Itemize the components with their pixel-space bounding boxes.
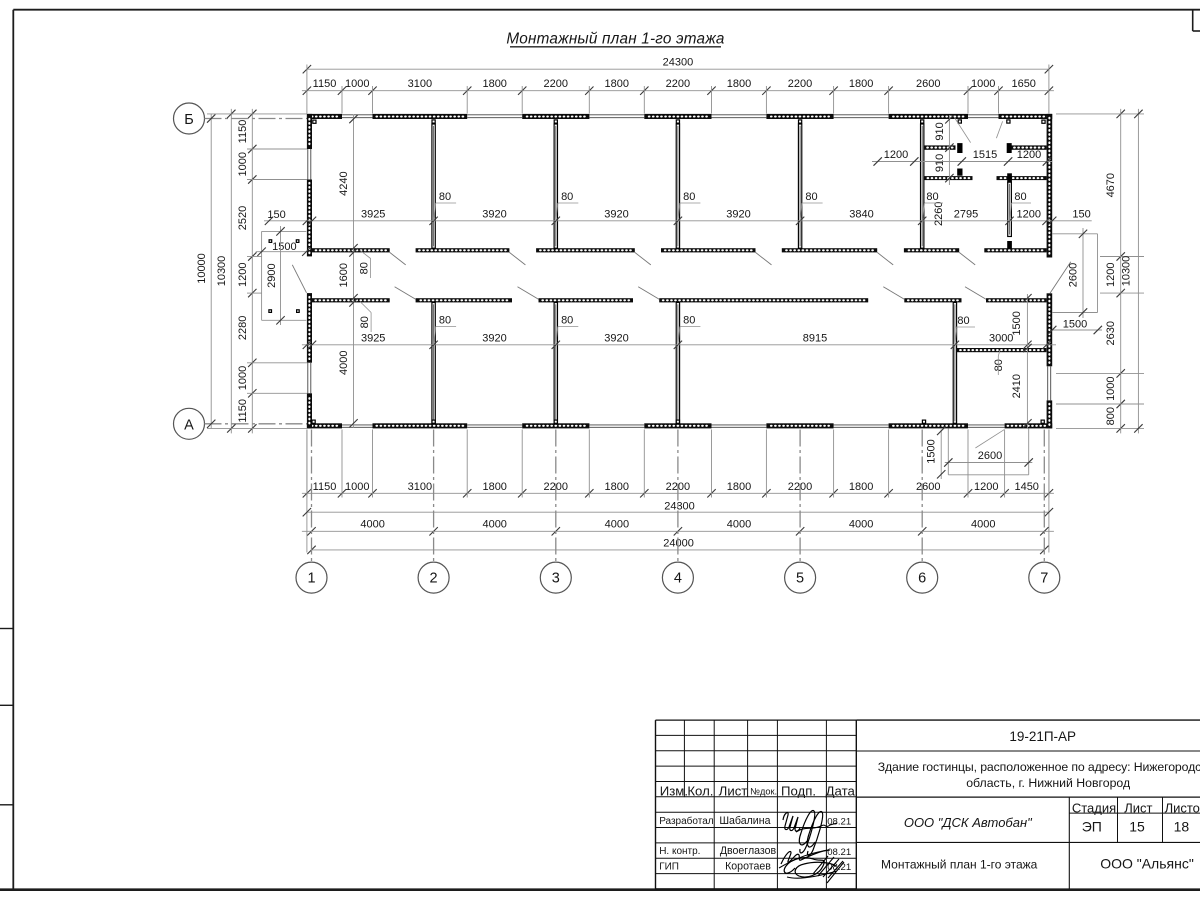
svg-text:1200: 1200 — [1017, 149, 1041, 161]
svg-text:ООО "ДСК Автобан": ООО "ДСК Автобан" — [904, 815, 1033, 830]
svg-text:2200: 2200 — [544, 78, 568, 90]
svg-text:18: 18 — [1174, 818, 1190, 834]
svg-text:1450: 1450 — [1014, 481, 1038, 493]
svg-text:4000: 4000 — [971, 518, 995, 530]
svg-text:ЭП: ЭП — [1082, 818, 1102, 834]
svg-text:1200: 1200 — [884, 149, 908, 161]
svg-text:1200: 1200 — [974, 481, 998, 493]
svg-text:2280: 2280 — [237, 316, 249, 340]
svg-text:1800: 1800 — [605, 78, 629, 90]
svg-text:4000: 4000 — [727, 518, 751, 530]
svg-text:08.21: 08.21 — [827, 847, 851, 858]
svg-text:1800: 1800 — [727, 78, 751, 90]
svg-text:910: 910 — [934, 122, 946, 140]
svg-text:область, г. Нижний Новгород: область, г. Нижний Новгород — [966, 776, 1130, 790]
svg-text:4: 4 — [674, 571, 682, 587]
svg-text:№док.: №док. — [750, 787, 777, 797]
svg-text:910: 910 — [934, 154, 946, 172]
svg-text:3920: 3920 — [482, 332, 506, 344]
svg-text:Б: Б — [184, 112, 194, 128]
svg-text:24300: 24300 — [664, 501, 695, 513]
svg-text:1150: 1150 — [313, 481, 337, 493]
svg-text:4000: 4000 — [605, 518, 629, 530]
svg-text:4000: 4000 — [360, 518, 384, 530]
svg-text:Здание гостинцы, расположенное: Здание гостинцы, расположенное по адресу… — [878, 760, 1200, 774]
svg-text:4670: 4670 — [1105, 173, 1117, 197]
svg-text:2410: 2410 — [1011, 374, 1023, 398]
svg-text:10300: 10300 — [1121, 256, 1133, 287]
svg-text:1200: 1200 — [1017, 208, 1041, 220]
svg-text:2630: 2630 — [1105, 321, 1117, 345]
svg-text:24000: 24000 — [663, 537, 694, 549]
svg-text:3925: 3925 — [361, 332, 385, 344]
svg-text:Стадия: Стадия — [1072, 801, 1116, 816]
svg-text:2260: 2260 — [933, 202, 945, 226]
svg-text:4000: 4000 — [849, 518, 873, 530]
svg-text:1600: 1600 — [338, 263, 350, 287]
svg-text:Изм.: Изм. — [660, 783, 688, 798]
svg-text:08.21: 08.21 — [827, 816, 851, 827]
svg-text:А: А — [184, 417, 194, 433]
svg-text:80: 80 — [358, 262, 370, 274]
svg-text:19-21П-АР: 19-21П-АР — [1009, 729, 1076, 744]
svg-text:Кол.: Кол. — [687, 783, 713, 798]
svg-text:1150: 1150 — [237, 120, 249, 144]
svg-text:2600: 2600 — [978, 450, 1002, 462]
svg-text:1200: 1200 — [237, 263, 249, 287]
svg-text:1: 1 — [307, 571, 315, 587]
svg-text:6: 6 — [918, 571, 926, 587]
svg-text:5: 5 — [796, 571, 804, 587]
svg-text:80: 80 — [683, 314, 695, 326]
svg-text:1500: 1500 — [1011, 311, 1023, 335]
svg-text:2200: 2200 — [666, 78, 690, 90]
svg-text:1800: 1800 — [482, 78, 506, 90]
svg-text:1150: 1150 — [237, 399, 249, 423]
svg-text:80: 80 — [683, 191, 695, 203]
svg-text:10300: 10300 — [216, 256, 228, 287]
svg-text:80: 80 — [359, 316, 371, 328]
svg-text:3000: 3000 — [989, 332, 1013, 344]
svg-text:3100: 3100 — [408, 78, 432, 90]
svg-text:ООО "Альянс": ООО "Альянс" — [1100, 856, 1194, 872]
svg-text:1500: 1500 — [925, 439, 937, 463]
svg-text:3100: 3100 — [408, 481, 432, 493]
svg-text:2600: 2600 — [916, 78, 940, 90]
svg-text:24300: 24300 — [663, 56, 694, 68]
svg-text:80: 80 — [1014, 191, 1026, 203]
svg-text:80: 80 — [957, 315, 969, 327]
svg-text:2795: 2795 — [954, 208, 978, 220]
svg-text:3920: 3920 — [726, 208, 750, 220]
svg-text:7: 7 — [1040, 571, 1048, 587]
svg-text:1800: 1800 — [849, 481, 873, 493]
svg-text:2200: 2200 — [788, 78, 812, 90]
svg-text:Лист: Лист — [719, 783, 748, 798]
svg-text:1200: 1200 — [1105, 263, 1117, 287]
svg-text:80: 80 — [993, 359, 1005, 371]
svg-text:Коротаев: Коротаев — [725, 860, 771, 872]
svg-text:Дата: Дата — [826, 783, 856, 798]
svg-text:Монтажный план 1-го этажа: Монтажный план 1-го этажа — [881, 857, 1038, 871]
svg-text:1000: 1000 — [345, 481, 369, 493]
svg-text:2600: 2600 — [1068, 263, 1080, 287]
svg-text:80: 80 — [561, 191, 573, 203]
svg-text:1800: 1800 — [482, 481, 506, 493]
svg-text:1000: 1000 — [237, 366, 249, 390]
svg-text:1000: 1000 — [345, 78, 369, 90]
svg-text:2600: 2600 — [916, 481, 940, 493]
svg-text:4000: 4000 — [482, 518, 506, 530]
svg-text:Шабалина: Шабалина — [719, 815, 770, 827]
svg-text:2900: 2900 — [266, 263, 278, 287]
svg-text:10000: 10000 — [196, 253, 208, 284]
svg-text:4240: 4240 — [338, 171, 350, 195]
svg-text:3920: 3920 — [604, 332, 628, 344]
svg-text:Двоеглазов: Двоеглазов — [720, 845, 777, 857]
svg-text:1650: 1650 — [1011, 78, 1035, 90]
svg-text:1500: 1500 — [272, 241, 296, 253]
svg-text:150: 150 — [1072, 208, 1090, 220]
svg-text:1000: 1000 — [237, 152, 249, 176]
svg-text:3925: 3925 — [361, 208, 385, 220]
svg-text:Н. контр.: Н. контр. — [659, 846, 700, 857]
svg-text:8915: 8915 — [803, 332, 827, 344]
svg-text:Монтажный план 1-го этажа: Монтажный план 1-го этажа — [506, 30, 724, 47]
svg-text:15: 15 — [1129, 818, 1145, 834]
svg-text:800: 800 — [1105, 407, 1117, 425]
svg-text:Разработал: Разработал — [659, 815, 714, 827]
svg-text:2520: 2520 — [237, 206, 249, 230]
svg-text:80: 80 — [439, 191, 451, 203]
svg-text:Листов: Листов — [1165, 801, 1200, 816]
svg-text:ГИП: ГИП — [659, 861, 679, 872]
svg-text:4000: 4000 — [338, 351, 350, 375]
svg-text:1000: 1000 — [1105, 376, 1117, 400]
svg-text:1800: 1800 — [727, 481, 751, 493]
svg-text:3840: 3840 — [849, 208, 873, 220]
svg-text:1150: 1150 — [313, 78, 337, 90]
svg-text:1800: 1800 — [605, 481, 629, 493]
svg-text:Подп.: Подп. — [781, 783, 816, 798]
svg-text:2: 2 — [430, 571, 438, 587]
svg-text:80: 80 — [926, 191, 938, 203]
svg-text:3920: 3920 — [482, 208, 506, 220]
svg-text:1500: 1500 — [1063, 318, 1087, 330]
svg-text:3920: 3920 — [604, 208, 628, 220]
svg-text:1800: 1800 — [849, 78, 873, 90]
svg-text:1000: 1000 — [971, 78, 995, 90]
svg-text:1515: 1515 — [973, 149, 997, 161]
svg-text:80: 80 — [439, 314, 451, 326]
svg-text:80: 80 — [805, 191, 817, 203]
svg-text:3: 3 — [552, 571, 560, 587]
svg-text:80: 80 — [561, 314, 573, 326]
svg-text:Лист: Лист — [1124, 801, 1152, 816]
